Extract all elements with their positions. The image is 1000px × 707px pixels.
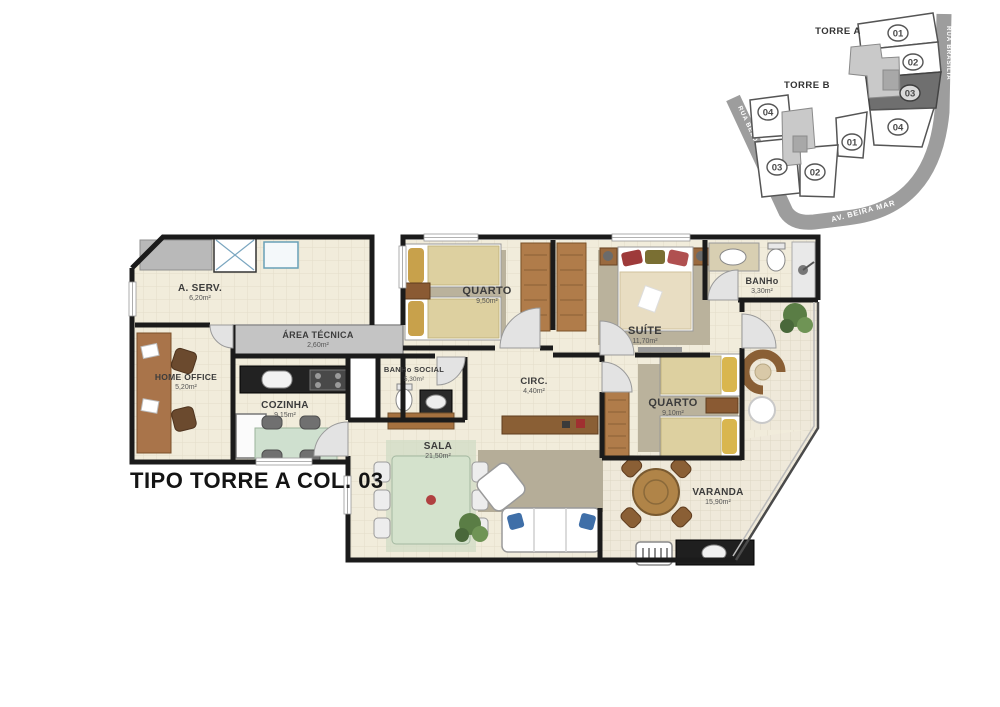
stove-burner	[315, 382, 321, 388]
floorplan-drawing: RUA BELO HORIZONTE AV. BEIRA MAR RUA BRA…	[0, 0, 1000, 707]
dresser	[404, 283, 430, 299]
torre-a-unit-02-number: 02	[908, 58, 919, 69]
plan-title: TIPO TORRE A COL. 03	[130, 468, 384, 493]
room-label-varanda: VARANDA	[692, 487, 743, 498]
torre-a-footprint: 01 02 03 04 TORRE A	[815, 13, 941, 147]
torre-b-label: TORRE B	[784, 80, 830, 91]
room-label-cozinha: COZINHA	[261, 400, 309, 411]
torre-a-unit-01-number: 01	[893, 29, 904, 40]
room-area-circ: 4,40m²	[523, 388, 545, 395]
room-area-cozinha: 9,15m²	[274, 412, 296, 419]
street-right-label: RUA BRASÍLIA	[945, 26, 954, 81]
kitchen-stove	[310, 370, 346, 390]
torre-a-label: TORRE A	[815, 26, 861, 37]
bath-sink	[720, 249, 746, 265]
dresser	[706, 398, 738, 413]
room-label-banho-social: BANHo SOCIAL	[384, 365, 444, 374]
room-area-varanda: 15,90m²	[705, 499, 731, 506]
room-area-quarto-2: 9,10m²	[662, 410, 684, 417]
bed-blanket	[428, 246, 499, 285]
bed-pillow	[722, 357, 737, 392]
torre-b-unit-01-number: 01	[847, 138, 858, 149]
bed-pillow	[408, 301, 424, 336]
rack-item	[562, 421, 570, 428]
plant	[455, 528, 469, 542]
bed-blanket	[661, 418, 721, 456]
room-area-suite: 11,70m²	[632, 338, 658, 345]
lamp	[603, 251, 613, 261]
room-area-banho-social: 5,30m²	[404, 376, 425, 383]
bed-blanket	[661, 356, 721, 394]
room-area-home-office: 5,20m²	[175, 384, 197, 391]
room-label-sala: SALA	[424, 441, 452, 452]
room-label-banho: BANHo	[746, 276, 779, 286]
room-area-area-tecnica: 2,60m²	[307, 342, 329, 349]
bed-pillow	[645, 250, 665, 264]
torre-b-core-shaft	[793, 136, 807, 152]
torre-b-unit-04-number: 04	[763, 108, 774, 119]
torre-a-unit-04-number: 04	[893, 123, 904, 134]
laundry-tank	[264, 242, 298, 268]
round-table	[633, 469, 679, 515]
torre-a-unit-03-number: 03	[905, 89, 916, 100]
bed-pillow	[722, 419, 737, 454]
room-label-suite: SUÍTE	[628, 324, 662, 337]
floor-plan: A. SERV. 6,20m² ÁREA TÉCNICA 2,60m² HOME…	[129, 234, 818, 565]
room-label-home-office: HOME OFFICE	[155, 372, 217, 382]
room-area-banho: 3,30m²	[751, 288, 773, 295]
room-label-area-tecnica: ÁREA TÉCNICA	[282, 330, 353, 340]
table-centerpiece	[426, 495, 436, 505]
laundry-area	[140, 238, 298, 272]
dining-chair	[374, 518, 390, 538]
bed-pillow	[408, 248, 424, 283]
toilet-tank	[768, 243, 785, 249]
office-paper	[141, 399, 159, 414]
stove-burner	[335, 373, 341, 379]
floorplan-page: RUA BELO HORIZONTE AV. BEIRA MAR RUA BRA…	[0, 0, 1000, 707]
lounge-cushion	[755, 364, 771, 380]
room-label-quarto-2: QUARTO	[648, 397, 697, 409]
stove-burner	[335, 382, 341, 388]
torre-b-unit-03-number: 03	[772, 163, 783, 174]
wardrobe	[557, 243, 586, 331]
office-paper	[141, 343, 159, 358]
room-label-quarto-1: QUARTO	[462, 285, 511, 297]
bath-sink	[426, 395, 446, 409]
room-area-sala: 21,50m²	[425, 453, 451, 460]
room-label-circ: CIRC.	[520, 376, 547, 387]
room-area-quarto-1: 9,50m²	[476, 298, 498, 305]
toilet	[767, 249, 785, 271]
kitchen-chair	[300, 416, 320, 429]
plant	[780, 319, 794, 333]
site-plan: RUA BELO HORIZONTE AV. BEIRA MAR RUA BRA…	[733, 13, 954, 224]
torre-b-footprint: 04 01 03 02 TORRE B	[750, 80, 867, 197]
torre-b-unit-02-number: 02	[810, 168, 821, 179]
laundry-counter	[140, 240, 212, 270]
kitchen-sink	[262, 371, 292, 388]
room-label-a-serv: A. SERV.	[178, 283, 222, 294]
torre-a-core-shaft	[883, 70, 899, 90]
plant	[797, 317, 813, 333]
office-chair	[171, 406, 198, 433]
stove-burner	[315, 373, 321, 379]
suite-bench	[638, 347, 682, 352]
dining-chair	[374, 490, 390, 510]
room-area-a-serv: 6,20m²	[189, 295, 211, 302]
rack-item	[576, 419, 585, 428]
plant	[472, 526, 488, 542]
ottoman	[749, 397, 775, 423]
